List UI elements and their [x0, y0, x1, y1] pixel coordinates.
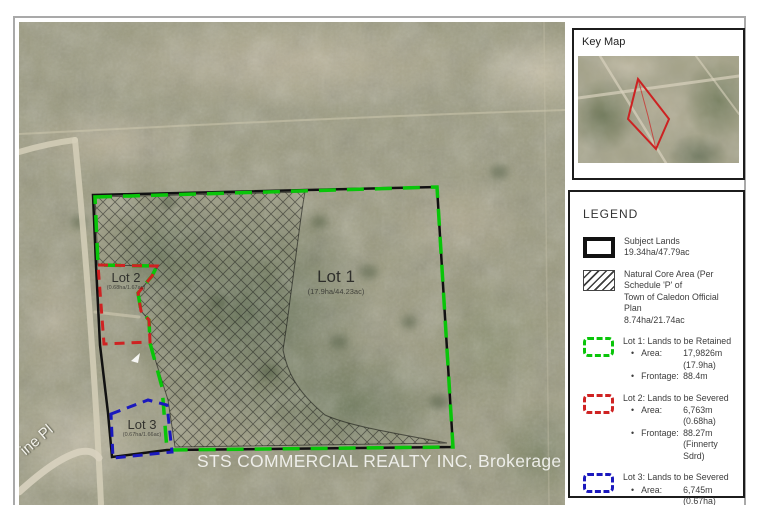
- lot2-area-sub: (0.68ha/1.67ac): [91, 286, 161, 292]
- subject-lands-label: Subject Lands: [624, 236, 690, 247]
- legend-item-lot3: Lot 3: Lands to be Severed Area: 6,745m …: [583, 472, 737, 505]
- lot1-swatch: [583, 337, 614, 357]
- subject-lands-swatch: [583, 237, 615, 258]
- lot1-name: Lot 1: [317, 267, 355, 286]
- lot1-area-label: Area:: [641, 348, 683, 371]
- natural-core-area: 8.74ha/21.74ac: [624, 315, 737, 326]
- lot1-area-sub: (17.9ha/44.23ac): [281, 288, 391, 296]
- natural-core-line1: Natural Core Area (Per Schedule 'P' of: [624, 269, 737, 292]
- aerial-map: Lot 1 (17.9ha/44.23ac) Lot 2 (0.68ha/1.6…: [19, 22, 565, 505]
- keymap-texture: [578, 56, 739, 163]
- legend-item-subject-lands: Subject Lands 19.34ha/47.79ac: [583, 236, 737, 259]
- lot3-area-value: 6,745m (0.67ha): [683, 485, 737, 505]
- lot3-area-sub: (0.67ha/1.66ac): [107, 433, 177, 439]
- natural-core-swatch: [583, 270, 615, 291]
- natural-core-line2: Town of Caledon Official Plan: [624, 292, 737, 315]
- lot3-swatch: [583, 473, 614, 493]
- lot1-area-value: 17,9826m (17.9ha): [683, 348, 737, 371]
- subject-lands-area: 19.34ha/47.79ac: [624, 247, 690, 258]
- lot1-frontage-label: Frontage:: [641, 371, 683, 382]
- key-map-photo: Subject Lands: [578, 56, 739, 163]
- lot1-title: Lot 1: Lands to be Retained: [623, 336, 737, 347]
- lot2-area-label: Area:: [641, 405, 683, 428]
- legend-panel: LEGEND Subject Lands 19.34ha/47.79ac Nat…: [568, 190, 745, 498]
- lot2-frontage-label: Frontage:: [641, 428, 683, 462]
- lot2-frontage-value: 88.27m (Finnerty Sdrd): [683, 428, 737, 462]
- map-overlay-graphics: [19, 22, 565, 505]
- listing-map-page: Lot 1 (17.9ha/44.23ac) Lot 2 (0.68ha/1.6…: [0, 0, 760, 505]
- key-map-title: Key Map: [582, 36, 743, 48]
- key-map-graphics: [578, 56, 739, 163]
- lot2-swatch: [583, 394, 614, 414]
- legend-item-lot2: Lot 2: Lands to be Severed Area: 6,763m …: [583, 393, 737, 463]
- brokerage-watermark: STS COMMERCIAL REALTY INC, Brokerage: [197, 451, 557, 472]
- lot2-area-value: 6,763m (0.68ha): [683, 405, 737, 428]
- lot1-map-label: Lot 1 (17.9ha/44.23ac): [281, 268, 391, 296]
- legend-item-natural-core: Natural Core Area (Per Schedule 'P' of T…: [583, 269, 737, 326]
- key-map-panel: Key Map Subject Lands: [572, 28, 745, 180]
- legend-title: LEGEND: [583, 207, 737, 221]
- lot2-title: Lot 2: Lands to be Severed: [623, 393, 737, 404]
- legend-item-lot1: Lot 1: Lands to be Retained Area: 17,982…: [583, 336, 737, 383]
- lot1-frontage-value: 88.4m: [683, 371, 707, 382]
- lot3-map-label: Lot 3 (0.67ha/1.66ac): [107, 418, 177, 438]
- lot2-map-label: Lot 2 (0.68ha/1.67ac): [91, 271, 161, 291]
- lot3-area-label: Area:: [641, 485, 683, 505]
- lot3-title: Lot 3: Lands to be Severed: [623, 472, 737, 483]
- lot2-name: Lot 2: [112, 270, 141, 285]
- lot3-name: Lot 3: [128, 417, 157, 432]
